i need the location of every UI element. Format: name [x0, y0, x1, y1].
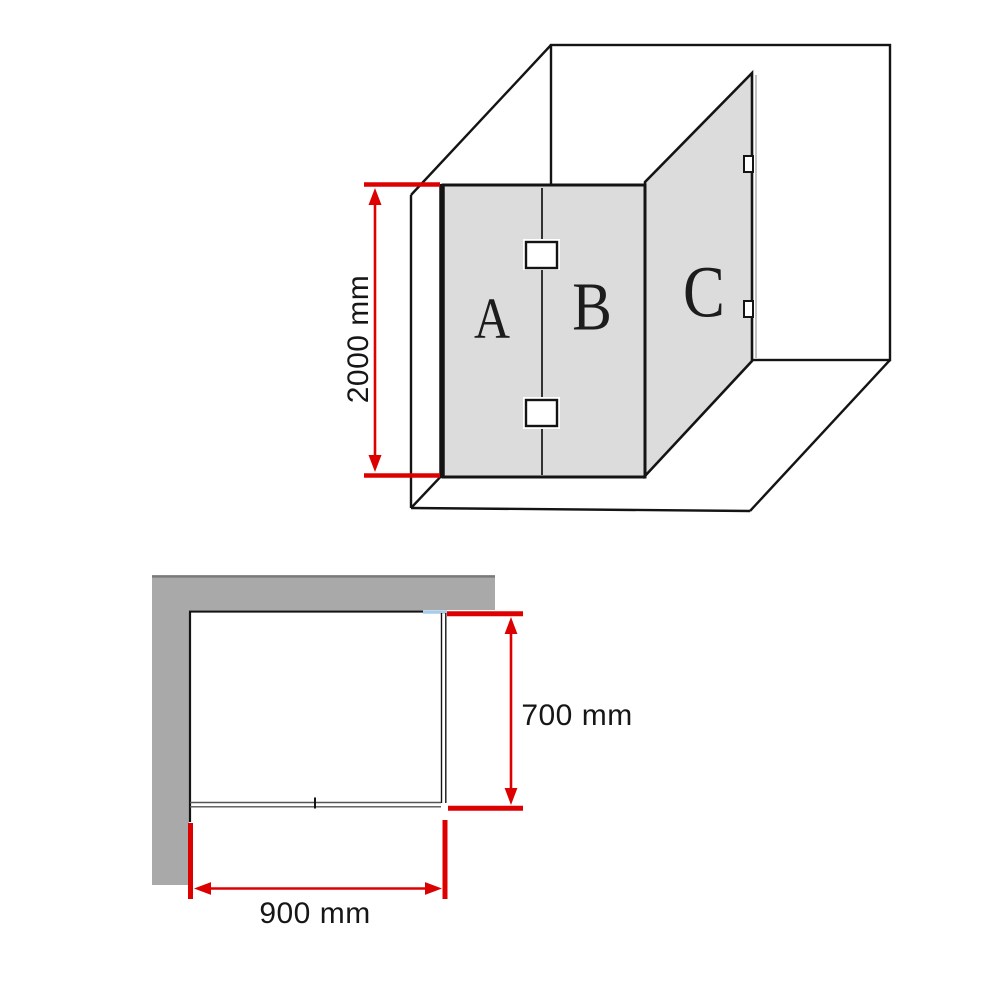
panel-c-bracket-top: [744, 156, 753, 172]
floor-right-edge: [750, 360, 890, 511]
width-dimension: [191, 820, 446, 899]
shower-screen-diagram-svg: [0, 0, 1000, 1000]
height-dim-arrowhead-down: [369, 455, 382, 472]
height-dim-arrowhead-up: [369, 188, 382, 205]
hinge-bottom: [526, 400, 557, 426]
height-dimension-label: 2000 mm: [342, 275, 376, 404]
panel-b-label: B: [572, 273, 612, 342]
front-panels: [442, 184, 645, 478]
width-dim-arrowhead-left: [194, 882, 211, 895]
left-wall-top-edge: [411, 45, 551, 195]
depth-dimension: [447, 614, 523, 809]
panel-c-bracket-bottom: [744, 301, 753, 317]
depth-dim-arrowhead-up: [505, 617, 518, 634]
diagram-canvas: 2000 mm A B C 700 mm 900 mm: [0, 0, 1000, 1000]
width-dim-arrowhead-right: [425, 882, 442, 895]
panel-c-label: C: [683, 256, 725, 329]
floor-front-edge: [411, 508, 750, 511]
hinge-top: [526, 242, 557, 268]
plan-glass: [190, 613, 446, 809]
page: { "top_view": { "height_label": "2000 mm…: [0, 0, 1000, 1000]
depth-dimension-label: 700 mm: [521, 699, 632, 733]
depth-dim-arrowhead-down: [505, 788, 518, 805]
panel-a-label: A: [474, 290, 510, 348]
width-dimension-label: 900 mm: [259, 897, 370, 931]
